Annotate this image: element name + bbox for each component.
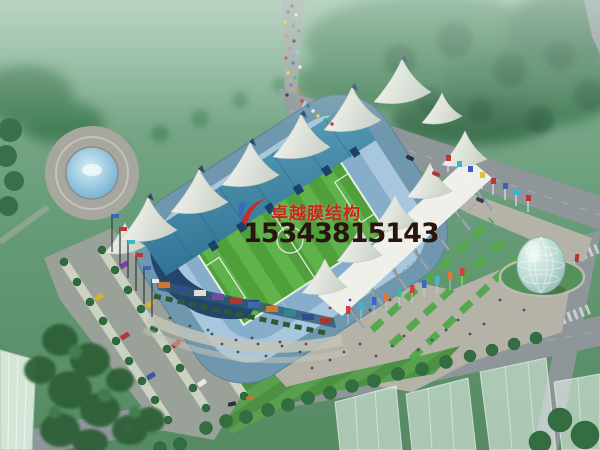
fountain bbox=[45, 126, 139, 220]
stadium-aerial-rendering: 卓越膜结构 15343815143 bbox=[0, 0, 600, 450]
haze-overlay bbox=[0, 0, 600, 130]
scene-svg bbox=[0, 0, 600, 450]
fountain-spray bbox=[82, 164, 102, 176]
